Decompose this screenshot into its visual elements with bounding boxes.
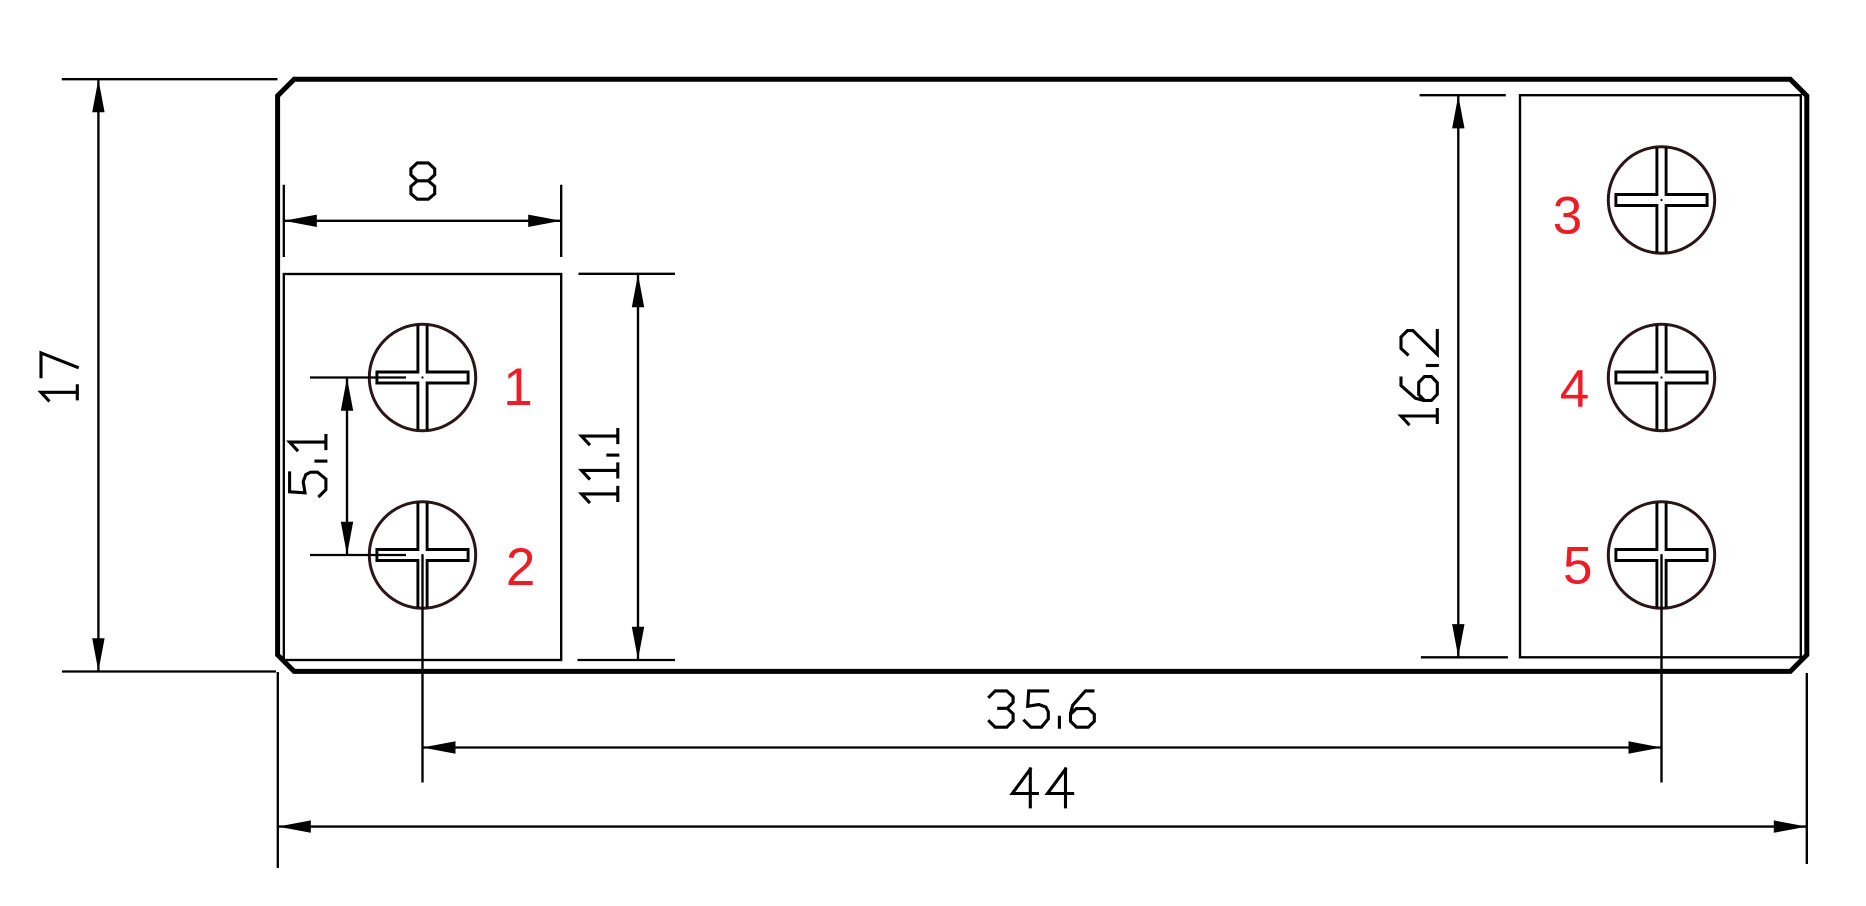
svg-text:1: 1 <box>503 358 532 417</box>
svg-text:2: 2 <box>506 538 535 597</box>
svg-text:5: 5 <box>1563 537 1592 596</box>
svg-text:4: 4 <box>1560 360 1589 419</box>
svg-text:3: 3 <box>1553 186 1582 245</box>
